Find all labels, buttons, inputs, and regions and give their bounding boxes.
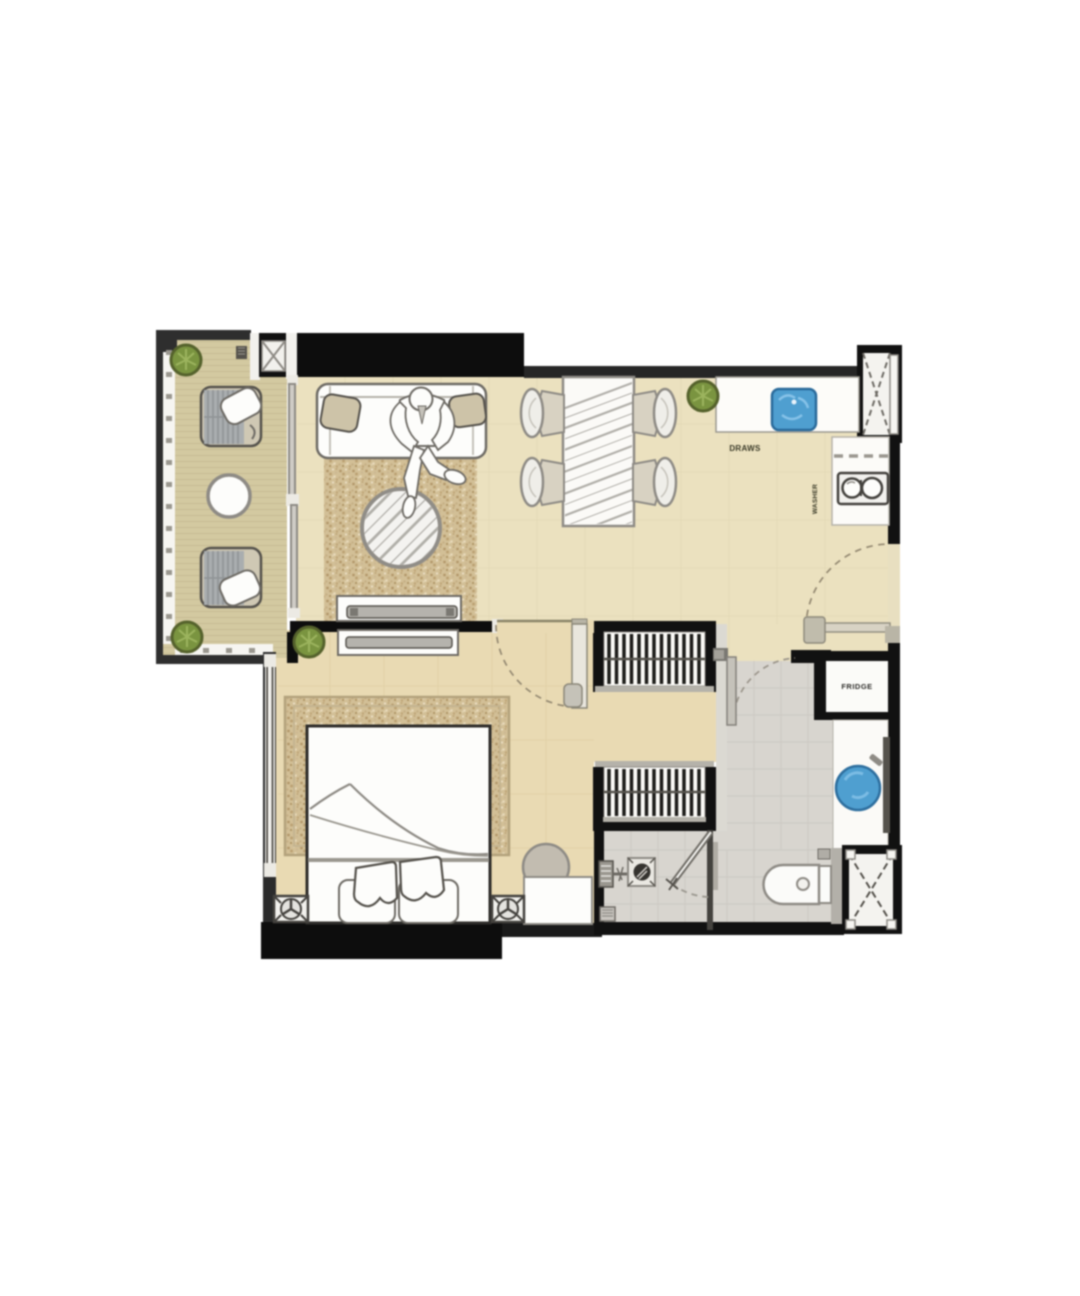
svg-text:FRIDGE: FRIDGE [841, 682, 872, 691]
svg-text:DRAWS: DRAWS [729, 444, 761, 453]
svg-text:WASHER: WASHER [812, 484, 819, 514]
